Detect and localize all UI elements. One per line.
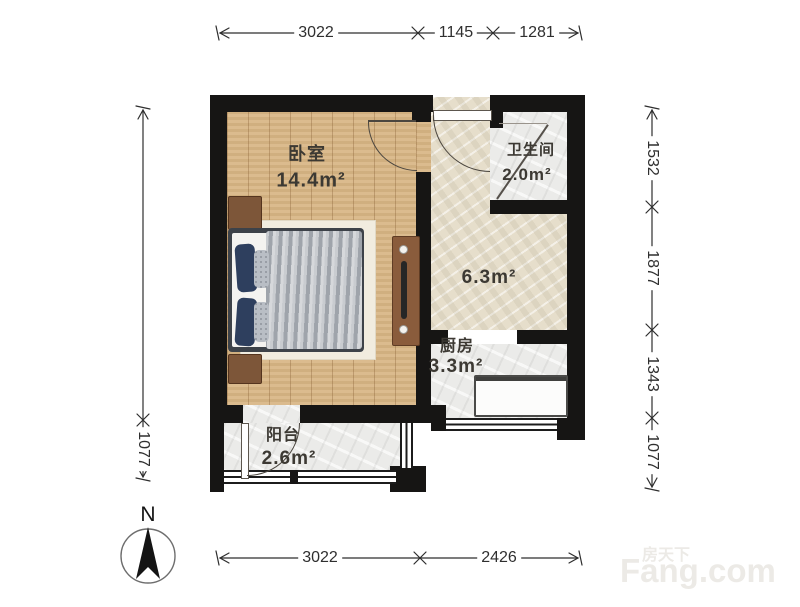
kitchen-area: 3.3m² (429, 356, 484, 378)
wall-kitchen-divider-right (517, 330, 567, 344)
wall-kitchen-corner (557, 418, 585, 440)
wall-balcony-left (210, 423, 224, 492)
kitchen-counter (474, 375, 568, 417)
wall-bedroom-bottom-left (210, 405, 243, 423)
wall-bathroom-bottom (490, 200, 567, 214)
bed (228, 228, 364, 352)
wardrobe-handle (401, 261, 407, 319)
floorplan: 卧室 14.4m² 卫生间 2.0m² 6.3m² 厨房 3.3m² 阳台 2.… (0, 0, 800, 607)
nightstand-top (228, 196, 262, 230)
wardrobe (392, 236, 420, 346)
wall-bedroom-bottom-right (300, 405, 431, 423)
wall-top-left-segment (210, 95, 433, 112)
floorplan-page: 3022 1145 1281 3022 2426 1532 1877 1343 … (0, 0, 800, 607)
wardrobe-knob-top (399, 245, 408, 254)
compass-north-label: N (140, 503, 155, 527)
bedroom-area: 14.4m² (276, 170, 345, 193)
wall-left (210, 95, 227, 423)
watermark-en: Fang.com (620, 552, 776, 590)
nightstand-bottom (228, 354, 262, 384)
bathroom-door-frame (499, 123, 547, 124)
wall-kitchen-window-stub (431, 405, 446, 431)
bedroom-label: 卧室 (288, 140, 326, 166)
bathroom-label: 卫生间 (507, 139, 555, 160)
wall-right (567, 95, 585, 440)
balcony-window-right (400, 423, 413, 468)
balcony-window-mullion (290, 470, 298, 484)
hall-area: 6.3m² (462, 267, 517, 289)
bedroom-door-gap-floor (416, 122, 431, 172)
pillow-gray-bottom (254, 302, 269, 342)
kitchen-label: 厨房 (440, 332, 474, 356)
bed-duvet (266, 231, 362, 349)
bathroom-area: 2.0m² (502, 165, 551, 185)
pillow-gray-top (254, 250, 269, 288)
balcony-area: 2.6m² (262, 448, 317, 470)
wardrobe-knob-bottom (399, 325, 408, 334)
balcony-label: 阳台 (266, 421, 300, 445)
kitchen-window (446, 418, 557, 431)
kitchen-counter-edge (476, 377, 566, 381)
